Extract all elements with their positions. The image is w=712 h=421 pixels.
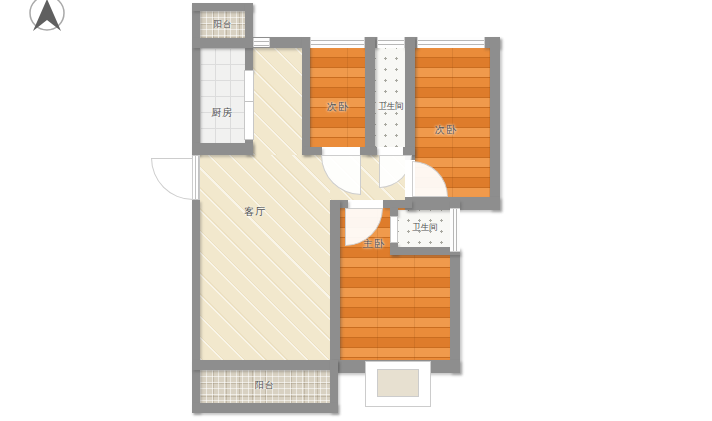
wall-balcony-bottom xyxy=(192,403,338,413)
wall-bedroom-top-left xyxy=(302,37,310,155)
wall-kitchen-bottom xyxy=(192,143,253,155)
label-bath-top: 卫生间 xyxy=(378,101,404,113)
room-living-floor-top xyxy=(253,48,302,155)
wall-bedroom-right-left-up xyxy=(405,37,415,160)
wall-balcony-divider xyxy=(192,38,253,48)
window-bedroom-right xyxy=(417,37,485,48)
wall-bath-mid-left-a xyxy=(390,208,398,216)
label-bedroom-top: 次卧 xyxy=(327,100,349,114)
wall-master-right-up xyxy=(450,200,460,208)
wall-bedroom-top-bottom-a xyxy=(302,147,322,155)
room-kitchen-floor xyxy=(200,48,245,143)
room-bedroom-top-floor xyxy=(310,48,365,147)
entry-door-panel xyxy=(192,155,200,200)
label-balcony-top: 阳台 xyxy=(214,19,233,31)
wall-exterior-right xyxy=(490,37,500,210)
north-arrow-icon xyxy=(24,0,70,41)
wall-left-lower xyxy=(192,200,200,413)
room-bath-top-floor xyxy=(375,48,405,147)
wall-bedroom-top-bottom-b xyxy=(360,147,377,155)
floor-plan: 阳台 厨房 客厅 次卧 卫生间 次卧 卫生间 主卧 阳台 xyxy=(0,0,712,421)
wall-bath-top-bottom xyxy=(403,147,415,155)
kitchen-sliding-door xyxy=(244,70,254,140)
label-bath-mid: 卫生间 xyxy=(412,222,438,234)
window-bath-mid xyxy=(450,208,460,252)
label-master: 主卧 xyxy=(363,237,385,251)
wall-left-upper xyxy=(192,3,200,155)
wall-balcony-top xyxy=(192,3,253,11)
window-bedroom-top xyxy=(310,37,365,48)
label-kitchen: 厨房 xyxy=(211,106,233,120)
label-balcony-bottom: 阳台 xyxy=(255,379,275,392)
room-living-floor-main xyxy=(200,155,330,360)
bath-mid-door xyxy=(390,216,398,243)
window-living-top xyxy=(253,38,270,47)
wall-master-left xyxy=(330,200,340,370)
wall-master-top-b xyxy=(383,200,412,208)
label-bedroom-right: 次卧 xyxy=(435,123,457,137)
window-bath-top xyxy=(377,37,405,48)
label-living: 客厅 xyxy=(244,205,266,219)
wall-living-bottom xyxy=(192,360,338,370)
bay-window-inner xyxy=(377,369,419,397)
wall-master-right-low xyxy=(450,250,460,373)
entry-door-swing xyxy=(151,158,193,200)
wall-bedroom-top-right xyxy=(365,37,375,155)
